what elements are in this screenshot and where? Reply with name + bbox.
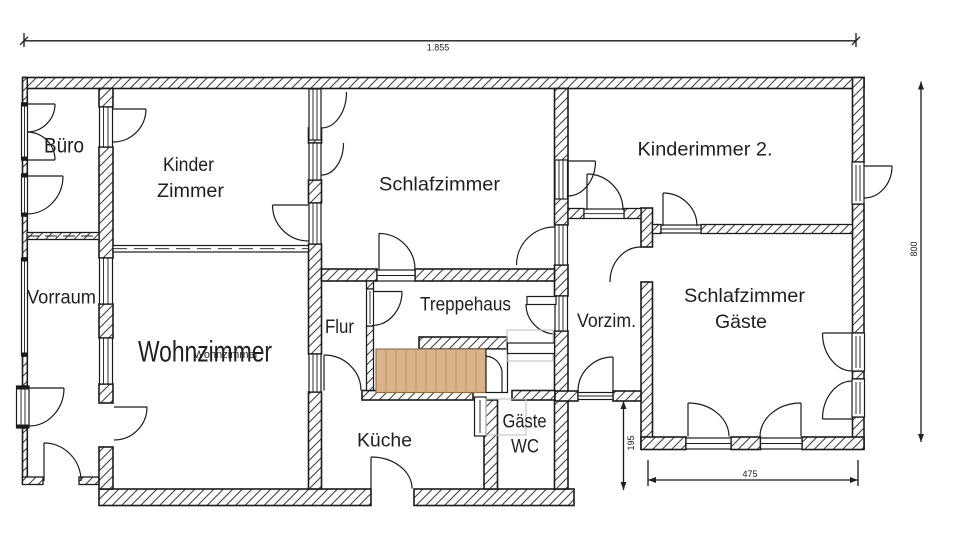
svg-text:Schlafzimmer: Schlafzimmer: [379, 174, 501, 196]
svg-text:Gäste: Gäste: [503, 411, 547, 433]
svg-text:Büro: Büro: [44, 135, 84, 158]
svg-text:475: 475: [742, 469, 757, 479]
svg-text:Kinder: Kinder: [163, 154, 214, 176]
svg-text:800: 800: [909, 241, 919, 256]
svg-text:Treppehaus: Treppehaus: [420, 294, 511, 316]
svg-text:Zimmer: Zimmer: [157, 180, 225, 202]
svg-text:Vorraum: Vorraum: [27, 288, 96, 309]
svg-text:Küche: Küche: [357, 430, 412, 452]
svg-text:Schlafzimmer: Schlafzimmer: [684, 285, 806, 307]
svg-text:Vorzim.: Vorzim.: [577, 311, 636, 332]
svg-text:195: 195: [626, 435, 636, 450]
svg-text:Kinderimmer 2.: Kinderimmer 2.: [638, 139, 773, 161]
svg-text:Gäste: Gäste: [715, 311, 767, 333]
svg-text:Wohnzimmer: Wohnzimmer: [138, 336, 272, 369]
svg-text:Flur: Flur: [325, 317, 355, 338]
svg-text:WC: WC: [511, 436, 539, 458]
svg-text:1.855: 1.855: [427, 43, 450, 53]
